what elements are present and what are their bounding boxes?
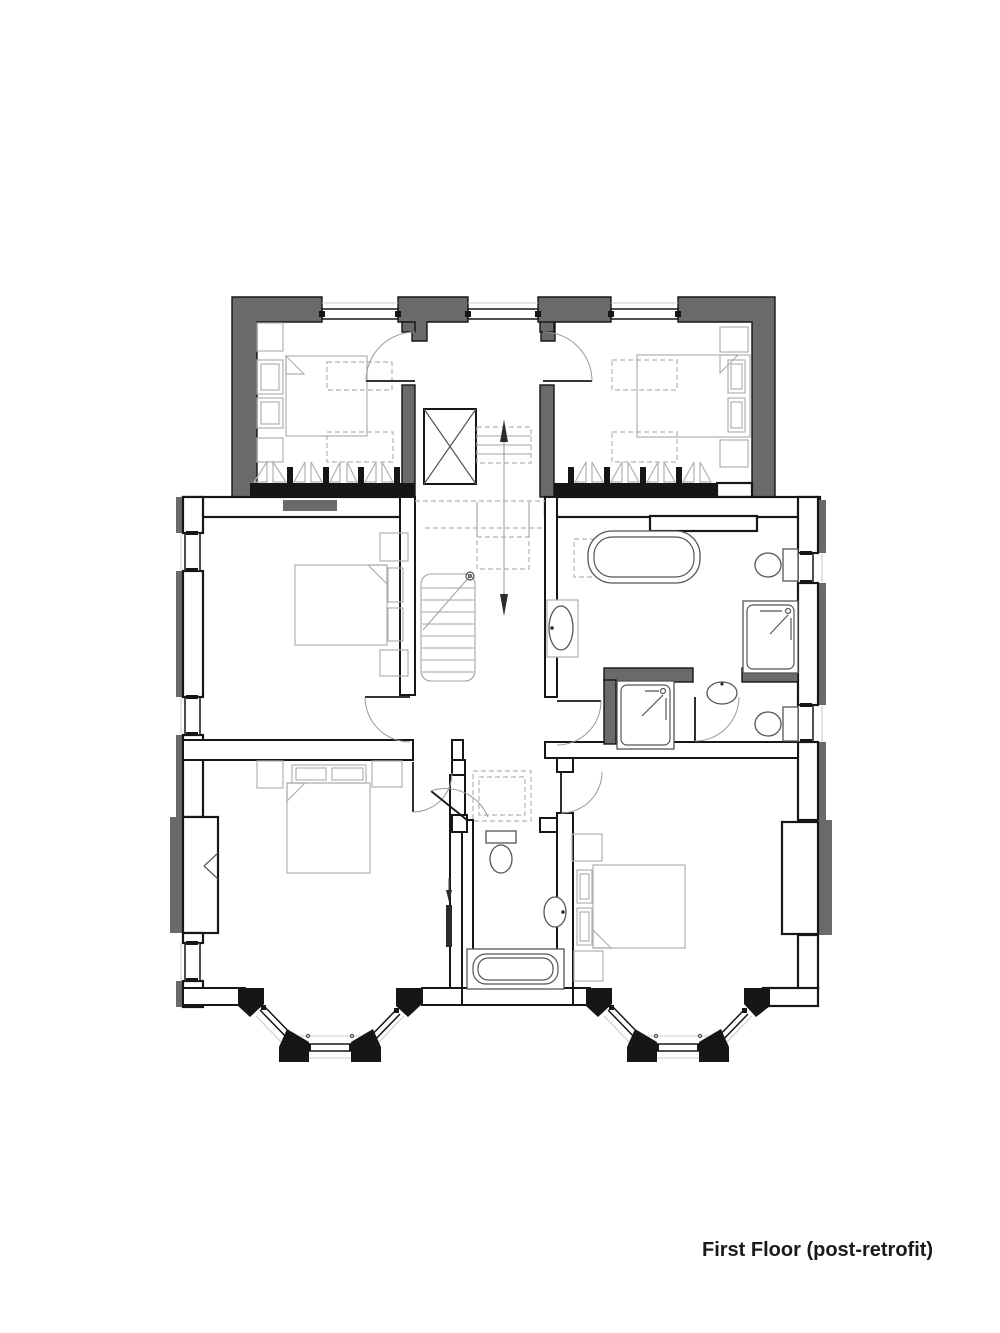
wc-bathroom-fixtures	[467, 831, 566, 989]
floor-plan-drawing	[0, 0, 1000, 1333]
toilet	[490, 845, 512, 873]
toilet-cistern	[486, 831, 516, 843]
family-bathroom-fixtures	[547, 531, 798, 673]
door-bedroom-topleft	[366, 332, 415, 381]
lower-block-walls	[170, 497, 832, 1007]
toilet-cistern	[783, 707, 798, 741]
down-arrow-icon	[500, 594, 508, 616]
toilet-cistern	[783, 549, 798, 581]
bay-window-right	[586, 988, 770, 1062]
bedroom-topright-furniture	[637, 327, 750, 467]
bay-window-left	[238, 988, 422, 1062]
door-bedroom-bottomleft	[413, 762, 452, 812]
up-arrow-icon	[500, 420, 508, 442]
door-bedroom-bottomright	[561, 772, 602, 813]
bedroom-bottomleft-furniture	[257, 761, 402, 873]
stairs	[415, 409, 545, 681]
windows	[181, 303, 822, 982]
bedroom-topleft-furniture	[257, 323, 367, 462]
door-bedroom-left	[365, 697, 410, 742]
toilet	[755, 553, 781, 577]
bedroom-left-furniture	[295, 533, 408, 676]
drawing-title: First Floor (post-retrofit)	[702, 1239, 933, 1262]
bedroom-bottomright-furniture	[572, 834, 685, 981]
door-family-bathroom	[557, 701, 601, 745]
toilet	[755, 712, 781, 736]
